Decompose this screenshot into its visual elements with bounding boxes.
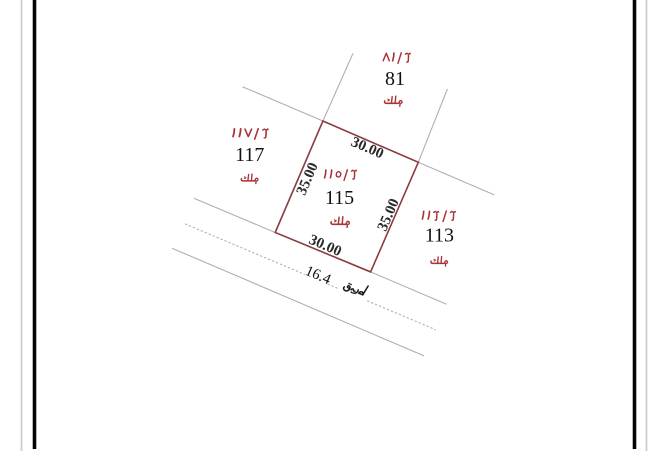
svg-text:81: 81 [385,68,405,90]
svg-text:115: 115 [325,187,354,209]
svg-text:117: 117 [235,144,264,166]
svg-text:113: 113 [425,225,454,247]
